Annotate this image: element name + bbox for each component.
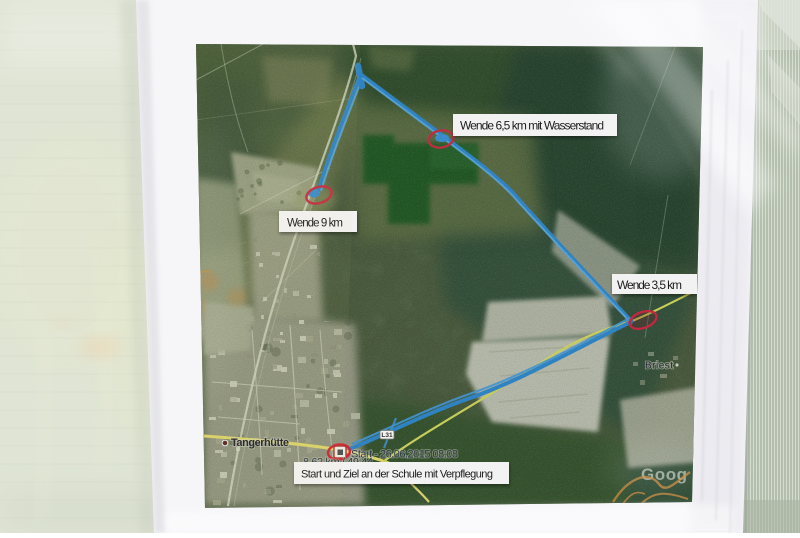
svg-text:Briest: Briest — [645, 361, 673, 372]
svg-text:L31: L31 — [381, 432, 393, 439]
svg-text:Wende 3,5 km: Wende 3,5 km — [617, 278, 682, 292]
svg-text:Wende 6,5 km mit Wasserstand: Wende 6,5 km mit Wasserstand — [460, 119, 604, 133]
